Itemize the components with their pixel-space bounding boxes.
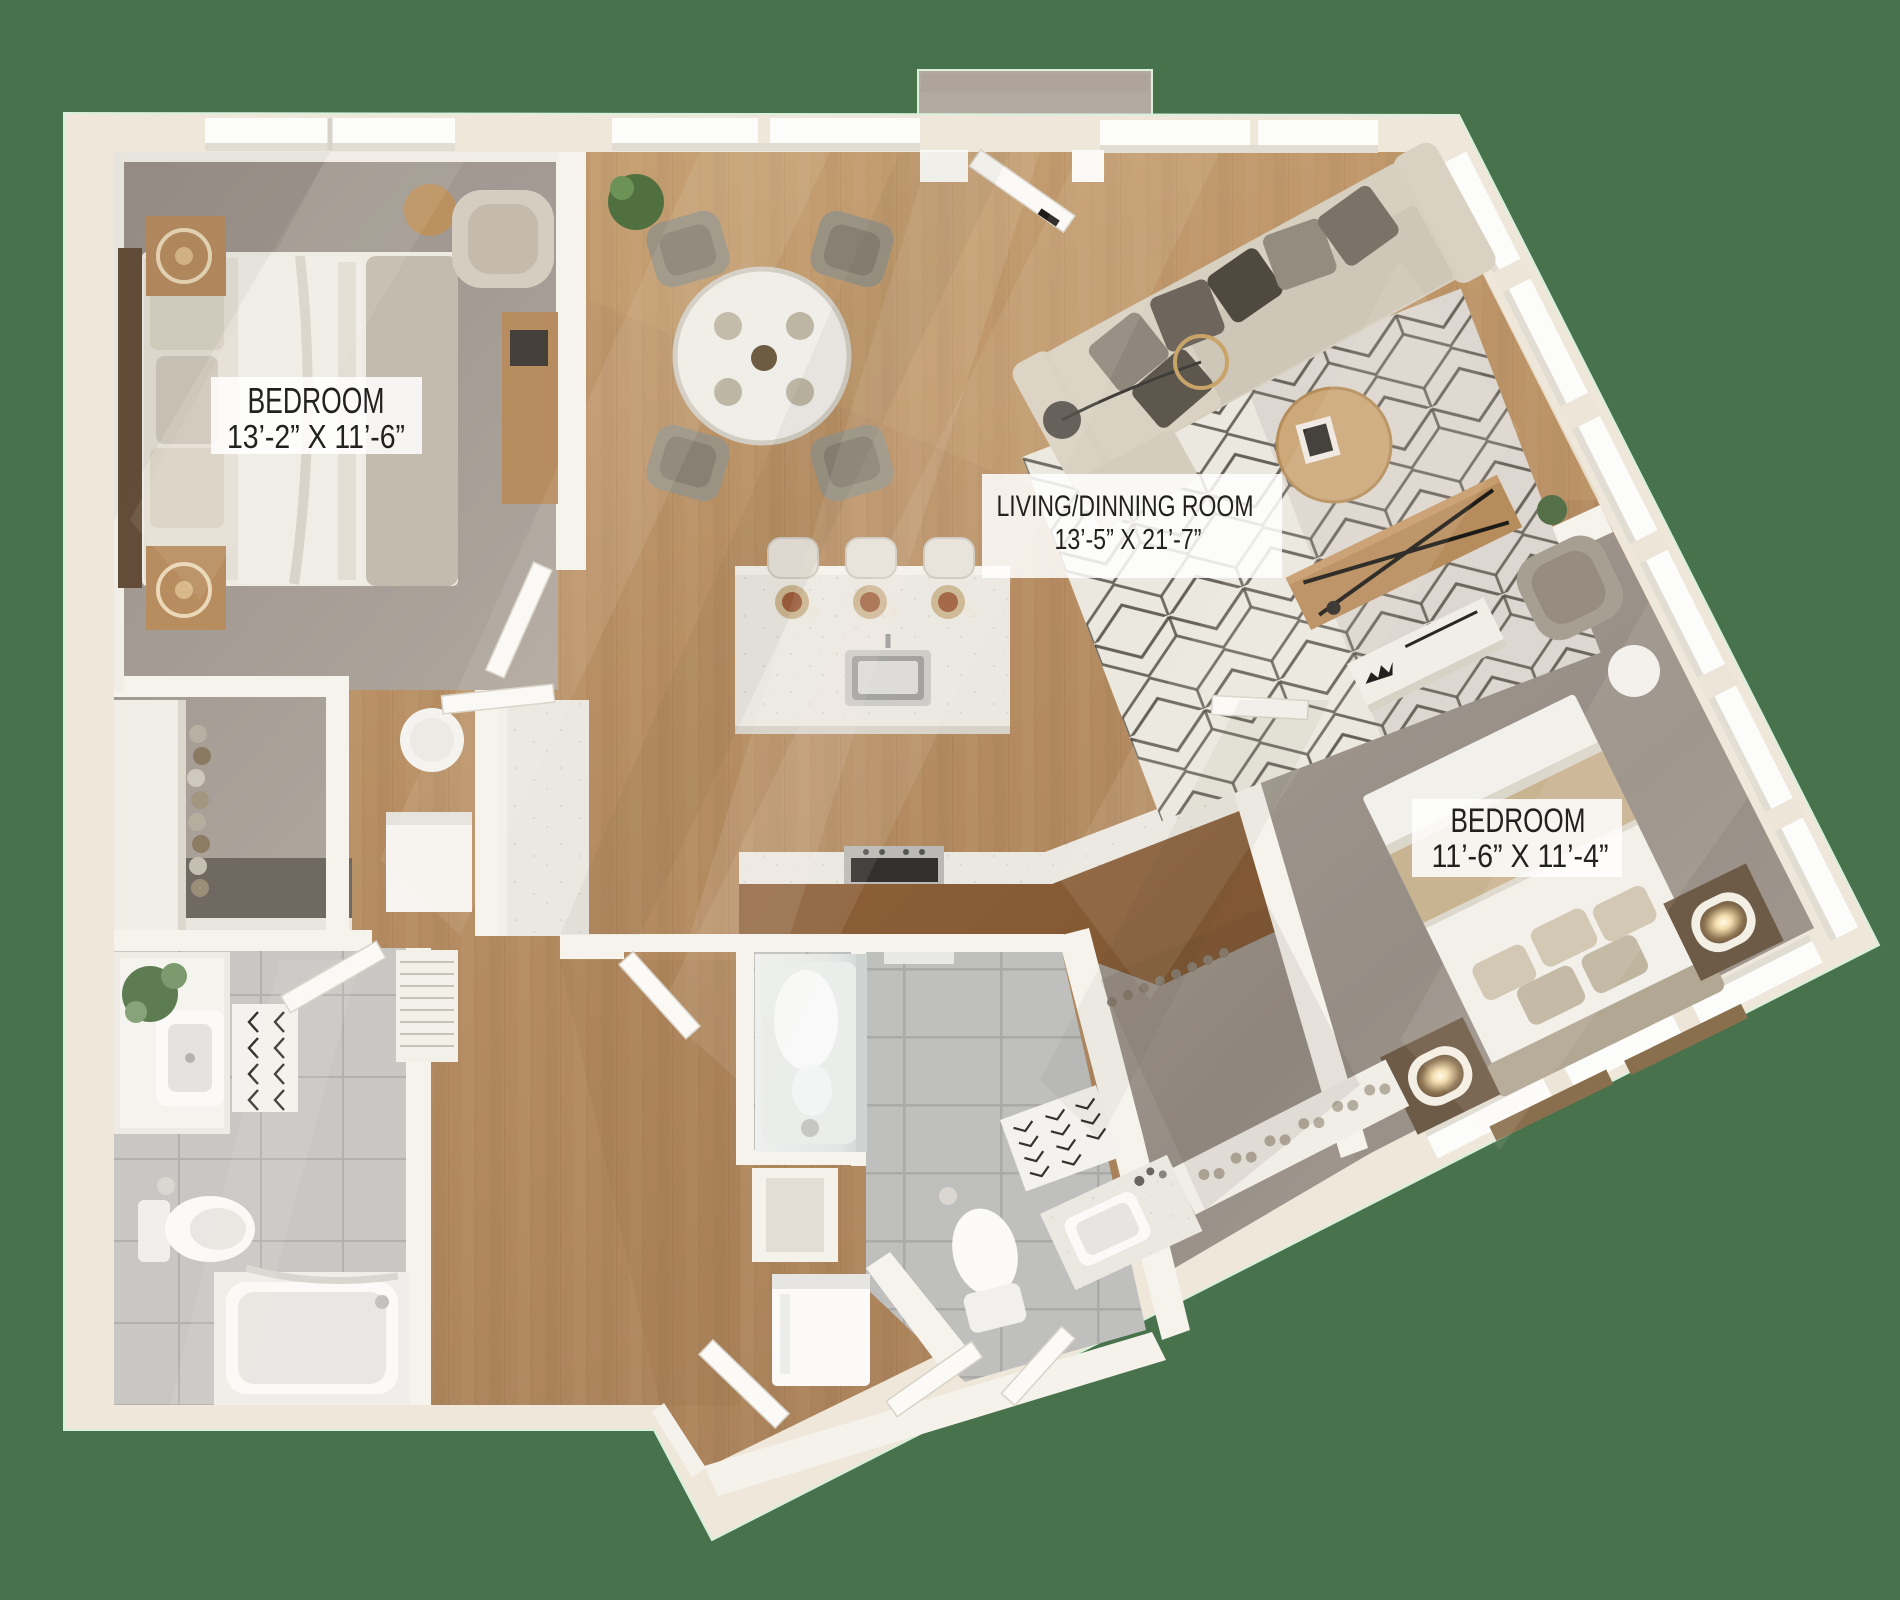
svg-text:BEDROOM: BEDROOM [1451,802,1586,840]
svg-text:LIVING/DINNING ROOM: LIVING/DINNING ROOM [997,490,1254,523]
svg-text:BEDROOM: BEDROOM [248,380,385,421]
svg-text:11’-6” X 11’-4”: 11’-6” X 11’-4” [1432,838,1609,874]
svg-text:13’-2” X 11’-6”: 13’-2” X 11’-6” [227,418,405,455]
svg-text:13’-5” X 21’-7”: 13’-5” X 21’-7” [1055,524,1202,556]
